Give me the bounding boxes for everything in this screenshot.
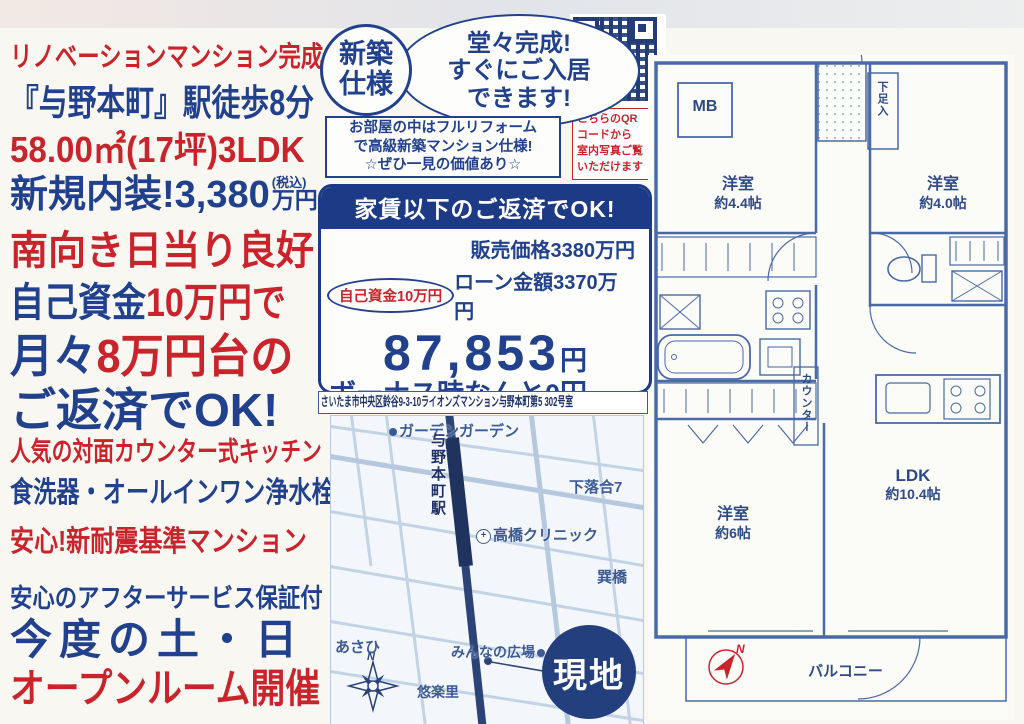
access-map: ガーデンガーデン 与野本町駅 下落合7 +高橋クリニック 巽橋 あさひ みんなの… (330, 415, 644, 724)
headline-open-room: オープンルーム開催 (10, 668, 320, 710)
loan-payment-box: 家賃以下のご返済でOK! 販売価格3380万円 自己資金10万円 ローン金額33… (318, 184, 652, 394)
label-room1: 洋室 約4.4帖 (683, 175, 793, 213)
headline-own-funds: 自己資金10万円で (10, 282, 286, 324)
map-label-clinic: +高橋クリニック (476, 524, 598, 545)
map-label-plaza-text: みんなの広場 (451, 644, 535, 660)
label-room3: 洋室 約6帖 (678, 505, 788, 543)
room3-name: 洋室 (678, 505, 788, 525)
move-in-ready-bubble: 堂々完成! すぐにご入居 できます! (398, 14, 640, 128)
badge-line2: 仕様 (339, 70, 393, 100)
label-shoe-closet: 下足入 (874, 81, 890, 143)
compass-n-label: N (367, 651, 376, 663)
loan-amount: ローン金額3370万円 (454, 266, 639, 324)
ldk-size: 約10.4帖 (853, 486, 973, 504)
monthly-label: 月々 (10, 330, 96, 382)
bubble-line1: 堂々完成! (467, 30, 571, 58)
map-label-yurakuri: 悠楽里 (417, 682, 459, 702)
headline-repayment-ok: ご返済でOK! (10, 386, 278, 434)
bubble-line2: すぐにご入居 (447, 57, 591, 85)
map-label-garden: ガーデンガーデン (387, 420, 519, 441)
room2-name: 洋室 (888, 175, 998, 195)
headline-station-walk: 『与野本町』駅徒歩8分 (10, 84, 314, 122)
own-funds-label: 自己資金 (10, 281, 146, 325)
headline-floor-area: 58.00㎡(17坪)3LDK (10, 131, 305, 169)
label-counter: カウンター (798, 373, 814, 443)
map-label-clinic-text: 高橋クリニック (493, 527, 598, 544)
headline-counter-kitchen: 人気の対面カウンター式キッチン (10, 438, 322, 466)
entry-tile (818, 63, 866, 141)
badge-line1: 新築 (339, 40, 393, 70)
headline-dishwasher: 食洗器・オールインワン浄水栓 (10, 478, 335, 508)
headline-open-weekend: 今度の土・日 (10, 618, 304, 662)
reform-line3: ☆ぜひ一見の価値あり☆ (327, 156, 559, 175)
map-marker-dot (389, 428, 397, 436)
station-band (452, 438, 466, 566)
room1-size: 約4.4帖 (683, 195, 793, 213)
flyer-page: リノベーションマンション完成 『与野本町』駅徒歩8分 58.00㎡(17坪)3L… (0, 0, 1024, 724)
headline-monthly: 月々8万円台の (10, 332, 293, 380)
full-reform-note: お部屋の中はフルリフォーム で高級新築マンション仕様! ☆ぜひ一見の価値あり☆ (325, 116, 561, 178)
reform-line1: お部屋の中はフルリフォーム (327, 119, 559, 138)
new-build-spec-badge: 新築 仕様 (320, 24, 412, 116)
monthly-payment: 87,853円 (321, 328, 649, 378)
site-leader-line (491, 662, 543, 671)
map-label-plaza: みんなの広場 (451, 642, 547, 662)
map-label-bridge: 巽橋 (597, 566, 627, 587)
price-box-header: 家賃以下のご返済でOK! (321, 187, 649, 229)
price-main-text: 新規内装!3,380 (10, 174, 270, 216)
headline-earthquake-standard: 安心!新耐震基準マンション (10, 527, 307, 557)
hospital-icon: + (476, 529, 491, 544)
price-tax-stack: (税込)万円 (272, 176, 318, 212)
floor-plan-drawing: N (648, 55, 1014, 720)
room2-size: 約4.0帖 (888, 195, 998, 213)
qr-finder-top-right (631, 17, 657, 43)
monthly-payment-amount: 87,853 (383, 325, 560, 381)
map-label-yurakuri-text: 悠楽里 (417, 684, 459, 700)
floor-plan: N MB 洋室 約4.4帖 洋室 約4.0帖 下足入 カウンター 洋室 約6帖 … (648, 55, 1014, 720)
kitchen-counter (876, 375, 1000, 423)
price-unit: 万円 (272, 189, 318, 212)
ldk-name: LDK (853, 465, 973, 486)
monthly-payment-unit: 円 (560, 346, 587, 376)
map-label-garden-text: ガーデンガーデン (399, 423, 519, 440)
toilet (888, 257, 920, 281)
room1-name: 洋室 (683, 175, 793, 195)
plan-compass: N (709, 642, 745, 684)
label-room2: 洋室 約4.0帖 (888, 175, 998, 213)
compass-rose: N (343, 648, 403, 718)
headline-price: 新規内装!3,380(税込)万円 (10, 176, 318, 216)
bubble-line3: できます! (467, 85, 571, 113)
own-funds-amount: 10万円で (146, 281, 286, 325)
property-address-text: さいたま市中央区鈴谷9-3-10ライオンズマンション与野本町第5 302号室 (319, 392, 573, 412)
label-balcony: バルコニー (788, 663, 903, 682)
price-row-loan: 自己資金10万円 ローン金額3370万円 (321, 263, 649, 324)
headline-renovation-complete: リノベーションマンション完成 (10, 42, 323, 71)
sale-price: 販売価格3380万円 (321, 229, 649, 263)
plan-compass-n: N (736, 642, 745, 656)
label-ldk: LDK 約10.4帖 (853, 465, 973, 504)
label-mb: MB (678, 97, 732, 117)
own-funds-oval: 自己資金10万円 (327, 278, 454, 313)
property-address: さいたま市中央区鈴谷9-3-10ライオンズマンション与野本町第5 302号室 (318, 391, 648, 414)
map-label-station: 与野本町駅 (427, 432, 448, 517)
headline-south-facing: 南向き日当り良好 (10, 230, 314, 272)
site-marker: 現地 (542, 625, 636, 719)
room3-size: 約6帖 (678, 525, 788, 543)
monthly-amount: 8万円台の (96, 330, 293, 382)
map-label-shimoochiai: 下落合7 (569, 476, 622, 497)
headline-after-service: 安心のアフターサービス保証付 (10, 585, 323, 612)
reform-line2: で高級新築マンション仕様! (327, 138, 559, 157)
